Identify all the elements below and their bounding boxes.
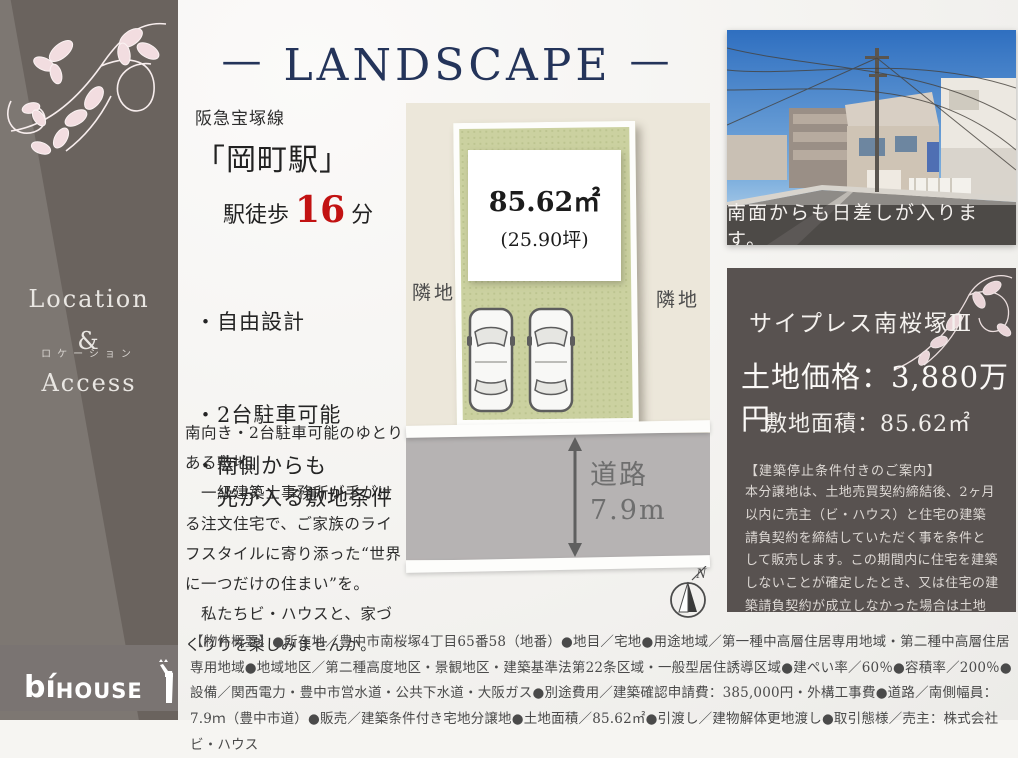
page-title: —LANDSCAPE— xyxy=(185,38,710,91)
building-condition-notice-body: 本分譲地は、土地売買契約締結後、2ヶ月以内に売主（ビ・ハウス）と住宅の建築請負契… xyxy=(745,482,999,612)
description-paragraph-2: 一級建築士事務所が手がける注文住宅で、ご家族のライフスタイルに寄り添った“世界に… xyxy=(185,478,407,599)
compass-icon: N xyxy=(666,566,714,622)
neighbor-label-left: 隣地 xyxy=(412,278,456,305)
building-condition-notice-title: 【建築停止条件付きのご案内】 xyxy=(745,460,941,479)
neighbor-label-right: 隣地 xyxy=(656,285,700,312)
project-name: サイプレス南桜塚Ⅲ xyxy=(749,304,973,338)
title-text: LANDSCAPE xyxy=(283,40,611,91)
walk-minutes: 16 xyxy=(289,189,351,231)
title-dash-left: — xyxy=(203,38,283,84)
company-logo: bíHOUSE xyxy=(24,659,180,703)
property-description: 南向き・2台駐車可能のゆとりある敷地。 一級建築士事務所が手がける注文住宅で、ご… xyxy=(185,418,407,660)
land-area-tsubo: (25.90坪) xyxy=(500,225,588,252)
title-dash-right: — xyxy=(612,38,692,84)
flyer-page: Location & Access ロケーション bíHOUSE —LANDSC xyxy=(0,0,1018,720)
offer-box: サイプレス南桜塚Ⅲ 土地価格：3,880万円 敷地面積：85.62㎡ 【建築停止… xyxy=(727,268,1016,612)
land-area-box: 85.62㎡ (25.90坪) xyxy=(468,150,621,281)
property-overview: 【物件概要】●所在地／豊中市南桜塚4丁目65番58（地番）●地目／宅地●用途地域… xyxy=(190,630,1012,758)
floral-vine-icon xyxy=(6,6,171,206)
photo-caption: 南面からも日差しが入ります。 xyxy=(727,205,1016,245)
company-logo-panel: bíHOUSE xyxy=(0,645,178,711)
logo-bi-text: bí xyxy=(24,673,56,703)
sidebar: Location & Access ロケーション bíHOUSE xyxy=(0,0,178,720)
road-width-arrow xyxy=(564,437,586,557)
logo-house-text: HOUSE xyxy=(56,679,143,703)
giraffe-icon xyxy=(146,659,180,703)
walk-time: 駅徒歩16分 xyxy=(195,189,410,231)
car-icon xyxy=(527,306,575,414)
sidebar-heading-line3: Access xyxy=(0,362,178,404)
svg-text:N: N xyxy=(695,566,707,582)
walk-unit: 分 xyxy=(351,203,373,228)
road-width-value: 7.9m xyxy=(590,493,667,528)
sidebar-subheading: ロケーション xyxy=(0,345,178,360)
road-label-text: 道路 xyxy=(590,458,667,493)
rail-line-name: 阪急宝塚線 xyxy=(195,104,410,129)
description-paragraph-1: 南向き・2台駐車可能のゆとりある敷地。 xyxy=(185,418,407,478)
sidebar-heading: Location & Access xyxy=(0,278,178,404)
land-area-m2: 85.62㎡ xyxy=(489,180,601,219)
station-name: 「岡町駅」 xyxy=(195,135,410,179)
road-dimension-label: 道路 7.9m xyxy=(590,458,667,528)
sidebar-heading-line1: Location xyxy=(0,278,178,320)
car-icon xyxy=(467,306,515,414)
walk-label: 駅徒歩 xyxy=(223,203,289,228)
feature-bullet-1: ・自由設計 xyxy=(195,310,305,334)
exterior-photo: 南面からも日差しが入ります。 xyxy=(727,30,1016,245)
site-area: 敷地面積：85.62㎡ xyxy=(765,406,971,438)
